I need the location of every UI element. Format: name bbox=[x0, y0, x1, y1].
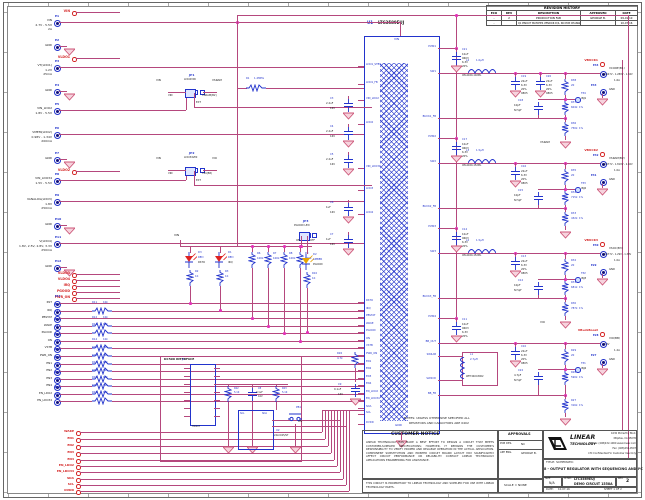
testpoint-ref: TP2 bbox=[581, 273, 586, 276]
resistor bbox=[280, 252, 288, 268]
resistor-ref: R8 bbox=[289, 253, 292, 256]
capacitor-voltage: 16V bbox=[330, 164, 335, 167]
wire bbox=[358, 355, 364, 356]
approval-name: GEORGE B. bbox=[521, 452, 537, 455]
capacitor-voltage: 16V bbox=[330, 108, 335, 111]
net-label: DVDD bbox=[34, 489, 74, 492]
terminal-range: 0.677V - 1.29V - 1.39V bbox=[604, 254, 631, 257]
wire bbox=[168, 170, 186, 171]
wire bbox=[358, 317, 364, 318]
inductor-value: 1.0µH bbox=[476, 60, 484, 63]
board-name: DEMO CIRCUIT 1558A bbox=[574, 483, 613, 487]
company-name-line1: LINEAR bbox=[570, 435, 595, 442]
wire bbox=[59, 348, 92, 349]
resistor-value: 10k bbox=[103, 317, 108, 320]
inductor-ref: L2 bbox=[466, 240, 469, 243]
rail-name: VSRAM bbox=[540, 141, 550, 144]
capacitor-note: NI 5pF bbox=[514, 380, 522, 383]
signal-name: EN_LDO34 bbox=[18, 399, 52, 402]
ic-pin-label: PBSTAT bbox=[366, 315, 375, 318]
resistor bbox=[264, 252, 272, 268]
capacitor-voltage: 16V bbox=[258, 396, 263, 399]
resistor-ref: R34 bbox=[571, 192, 576, 195]
ic-pin-label: PVIN4 bbox=[408, 316, 436, 319]
wire bbox=[438, 228, 456, 229]
capacitor-tol: 20% bbox=[462, 66, 468, 69]
wire bbox=[358, 424, 364, 425]
address-line: LTC Confidential-For Customer Use Only bbox=[584, 453, 636, 456]
ic-no-value: LTC3589EUJ bbox=[574, 478, 595, 482]
signal-name: EN4 bbox=[18, 384, 52, 387]
ic-pin-label: LDO1_STBY bbox=[366, 64, 381, 67]
pin-stub bbox=[184, 368, 190, 369]
resistor-value: 1K bbox=[225, 276, 228, 279]
capacitor bbox=[452, 142, 461, 155]
capacitor-voltage: 16V bbox=[330, 244, 335, 247]
dc590-title: DC590 INTERFACE bbox=[164, 358, 194, 361]
wire bbox=[322, 410, 323, 432]
ic-pin-label: BUCK1_FB bbox=[408, 116, 436, 119]
capacitor-ref: C4 bbox=[330, 126, 333, 129]
wire bbox=[358, 414, 364, 415]
wire bbox=[538, 369, 565, 370]
wire bbox=[228, 402, 229, 446]
capacitor-ref: C15 bbox=[518, 190, 523, 193]
capacitor-voltage: 16V bbox=[338, 394, 343, 397]
resistor-ref: R17 bbox=[92, 362, 97, 365]
resistor-tol: 1% bbox=[579, 405, 583, 408]
gnd-label: GND bbox=[20, 89, 52, 92]
sheet-info: SHEET 1 OF 2 bbox=[604, 489, 622, 492]
gnd-label: GND bbox=[609, 269, 615, 272]
resistor-value: 10k bbox=[103, 302, 108, 305]
jumper-pad bbox=[312, 233, 317, 238]
capacitor-value: 4.7pF bbox=[514, 375, 521, 378]
capacitor-voltage: 16V bbox=[330, 136, 335, 139]
wire bbox=[331, 410, 332, 453]
testpoint-label: INJ3 bbox=[581, 278, 586, 281]
terminal-id: E1 bbox=[55, 15, 59, 18]
terminal-desc: V(LDO4) bbox=[6, 240, 52, 243]
terminal-current: 1.0A bbox=[614, 170, 620, 173]
gnd-symbol bbox=[343, 216, 354, 224]
ic-pin-label: PVIN1 bbox=[408, 46, 436, 49]
pin-stub bbox=[214, 408, 220, 409]
testpoint-label: INJ1 bbox=[581, 98, 586, 101]
terminal-name: VSOC(B3) bbox=[609, 247, 623, 250]
resistor-ref: R31 bbox=[571, 282, 576, 285]
wire bbox=[276, 402, 277, 410]
signal-name: EN3 bbox=[18, 377, 52, 380]
resistor bbox=[303, 272, 311, 288]
fb-wire bbox=[438, 208, 565, 209]
resistor-value: 590k bbox=[571, 377, 577, 380]
inductor-part: XPL4020-102ML bbox=[462, 75, 481, 78]
resistor-value: 604k bbox=[571, 107, 577, 110]
signal-name: EN_LDO2 bbox=[18, 392, 52, 395]
scale-box: SCALE = NONE bbox=[498, 479, 543, 493]
wire bbox=[358, 393, 364, 394]
wire bbox=[628, 15, 629, 460]
terminal-desc: VIN bbox=[6, 19, 52, 22]
wire bbox=[190, 286, 191, 302]
resistor-ref: R36 bbox=[571, 123, 576, 126]
title-label: TITLE: SCHEMATIC bbox=[546, 461, 573, 464]
capacitor bbox=[452, 52, 461, 65]
resistor-ref: R13 bbox=[92, 324, 97, 327]
resistor-value: 20 bbox=[571, 175, 574, 178]
wire bbox=[112, 326, 364, 327]
wire bbox=[168, 92, 186, 93]
resistor-value: 20 bbox=[571, 85, 574, 88]
capacitor-value: 2.2uF bbox=[326, 103, 333, 106]
gnd-symbol bbox=[560, 418, 571, 426]
resistor bbox=[216, 270, 224, 286]
wire bbox=[400, 22, 401, 36]
capacitor-value: 2.2uF bbox=[326, 131, 333, 134]
wire bbox=[565, 226, 566, 230]
signal-name: WAKE bbox=[18, 324, 52, 327]
ic-pin-label: EN_LDO2 bbox=[366, 391, 378, 394]
rev-value: 2 bbox=[626, 480, 629, 485]
capacitor-size: 0805 bbox=[546, 93, 553, 96]
ic-pin-label: EN3 bbox=[366, 376, 371, 379]
ic-pin-label: VIN_LDO2 bbox=[366, 98, 379, 101]
wire bbox=[59, 356, 92, 357]
terminal-id: E4 bbox=[55, 84, 59, 87]
j1-connector bbox=[190, 364, 216, 426]
junction-dot bbox=[300, 245, 303, 248]
capacitor-value: 10pF bbox=[514, 105, 520, 108]
wire bbox=[59, 110, 186, 111]
terminal-id: E6 bbox=[55, 127, 59, 130]
resistor-value: 1K bbox=[312, 278, 315, 281]
jumper-sub-left: VIN bbox=[168, 95, 172, 98]
terminal-desc: VANALOG(LDO3) bbox=[6, 198, 52, 201]
schematic-canvas: VINE1VIN2.7V - 5.5V2AE2GNDVLDO1E3VT(LDO1… bbox=[0, 0, 645, 500]
approval-name: NC bbox=[521, 443, 525, 446]
ic-pin-label: SW1 bbox=[408, 71, 436, 74]
resistor-value: 10k bbox=[103, 370, 108, 373]
inductor-part: XPL4020-152ML bbox=[462, 255, 481, 258]
terminal-id: E22 bbox=[55, 364, 60, 367]
wire bbox=[59, 333, 92, 334]
net-label: IRQ bbox=[30, 284, 70, 288]
customer-notice-box: CUSTOMER NOTICE LINEAR TECHNOLOGY HAS MA… bbox=[362, 430, 498, 479]
testpoint-ref: TP3 bbox=[581, 183, 586, 186]
junction-dot bbox=[306, 331, 309, 334]
ic-pin-label: PGOOD bbox=[366, 330, 376, 333]
ic-pin-label: SW4CD bbox=[408, 378, 436, 381]
terminal-desc: VMEM(LDO2) bbox=[6, 131, 52, 134]
led-ref: D1 bbox=[228, 252, 232, 255]
resistor-value: 10k bbox=[103, 377, 108, 380]
terminal-id: E15 bbox=[55, 311, 60, 314]
capacitor bbox=[534, 372, 543, 385]
resistor-value: 5.1K bbox=[282, 392, 287, 395]
wire bbox=[59, 267, 67, 268]
resistor-value: 10k bbox=[103, 362, 108, 365]
junction-dot bbox=[283, 332, 286, 335]
wire bbox=[59, 67, 364, 68]
capacitor-ref: C9 bbox=[338, 384, 341, 387]
terminal-id: E28 bbox=[593, 335, 598, 338]
terminal-name: VSRAM(B2) bbox=[609, 157, 625, 160]
wire bbox=[538, 295, 539, 298]
resistor bbox=[561, 122, 569, 136]
capacitor-ref: C14 bbox=[462, 229, 467, 232]
terminal-id: E34 bbox=[593, 65, 598, 68]
net-label: VLDO1 bbox=[30, 56, 70, 60]
pin-stub bbox=[214, 400, 220, 401]
resistor-value: 10k bbox=[103, 339, 108, 342]
ic-pin-label: RSTO bbox=[366, 300, 373, 303]
resistor bbox=[248, 252, 256, 268]
wire bbox=[334, 410, 335, 460]
ic-pin-label: BUCK2_FB bbox=[408, 206, 436, 209]
resistor-value: 100k bbox=[257, 258, 263, 261]
wire bbox=[340, 410, 341, 472]
terminal-desc: VIN_LDO2 bbox=[6, 107, 52, 110]
capacitor-ref: C19 bbox=[521, 76, 526, 79]
wire bbox=[358, 370, 364, 371]
ic-part: 24LC025/ST bbox=[274, 435, 288, 438]
net-label: VBUCK1 bbox=[530, 59, 598, 62]
ic-pin-label: ON bbox=[366, 338, 370, 341]
capacitor-value: 0.1uF bbox=[334, 389, 341, 392]
resistor-value: 750k bbox=[571, 128, 577, 131]
resistor-ref: R30 bbox=[571, 303, 576, 306]
wire bbox=[59, 201, 364, 202]
resistor-ref: R1 bbox=[246, 78, 249, 81]
wire bbox=[59, 311, 92, 312]
pin-stub bbox=[184, 376, 190, 377]
gnd-symbol bbox=[597, 98, 608, 106]
ic-pin-label: EN_LDO34 bbox=[366, 398, 380, 401]
resistor-ref: R7 bbox=[273, 253, 276, 256]
size-value: N/A bbox=[549, 482, 555, 486]
resistor-tol: 1% bbox=[579, 308, 583, 311]
terminal-id: E11 bbox=[55, 236, 61, 239]
resistor-tol: 1% bbox=[579, 128, 583, 131]
gnd-symbol bbox=[597, 368, 608, 376]
wire bbox=[358, 100, 364, 101]
resistor bbox=[92, 329, 112, 337]
buckboost-loop bbox=[462, 352, 498, 386]
testpoint-label: INJ4 bbox=[581, 368, 586, 371]
terminal-name: VIO(BB) bbox=[609, 337, 620, 340]
net-label: VBuckBoost bbox=[530, 329, 598, 332]
terminal-id: E17 bbox=[55, 326, 60, 329]
wire bbox=[358, 363, 364, 364]
capacitor-size: 0805 bbox=[521, 273, 528, 276]
resistor bbox=[561, 302, 569, 316]
gnd-symbol bbox=[290, 446, 301, 454]
jumper-opt-right: VIO bbox=[212, 157, 217, 160]
gnd-symbol bbox=[64, 227, 75, 235]
wire bbox=[59, 326, 92, 327]
ic-pin-label: LDO2 bbox=[366, 122, 373, 125]
ic-pin-label: PWR_ON bbox=[366, 353, 377, 356]
resistor-value: 100k bbox=[289, 258, 295, 261]
gnd-symbol bbox=[560, 231, 571, 239]
resistor bbox=[224, 386, 232, 402]
wire bbox=[358, 84, 364, 85]
ic-pin-label: SDA bbox=[366, 406, 371, 409]
capacitor-value: 10pF bbox=[514, 195, 520, 198]
fb-wire bbox=[438, 298, 565, 299]
terminal-id: E12 bbox=[55, 260, 61, 263]
terminal-range: 0.647V - 1.289V - 1.34V bbox=[604, 74, 633, 77]
size-box: SIZE N/A bbox=[543, 477, 562, 487]
date-box: DATE: 10-07-16 SHEET 1 OF 2 bbox=[543, 487, 637, 493]
capacitor-note: NI 5pF bbox=[514, 200, 522, 203]
testpoint-label: INJ2 bbox=[581, 188, 586, 191]
wire bbox=[80, 485, 346, 486]
wire bbox=[358, 385, 364, 386]
gnd-symbol bbox=[510, 180, 521, 188]
terminal-current: 1.2A bbox=[614, 350, 620, 353]
pin-stub bbox=[184, 392, 190, 393]
wire bbox=[112, 333, 364, 334]
jumper-sub-bottom: EXT bbox=[196, 180, 201, 183]
wire bbox=[300, 268, 301, 341]
terminal-id: E7 bbox=[55, 152, 59, 155]
capacitor bbox=[511, 347, 520, 360]
resistor-value: 10k bbox=[103, 347, 108, 350]
gnd-symbol bbox=[343, 248, 354, 256]
wire bbox=[358, 302, 364, 303]
net-label-marker bbox=[600, 62, 605, 67]
wire bbox=[76, 171, 120, 172]
wire bbox=[203, 92, 217, 93]
terminal-desc: 2.7V - 5.5V bbox=[6, 24, 52, 27]
net-label: SCL bbox=[34, 483, 74, 486]
capacitor-ref: C17 bbox=[462, 139, 467, 142]
resistor bbox=[561, 79, 569, 95]
terminal-id: E19 bbox=[55, 341, 60, 344]
terminal-id: E16 bbox=[55, 319, 60, 322]
wire bbox=[358, 310, 364, 311]
resistor-ref: R15 bbox=[92, 347, 97, 350]
ic-pin-label: EN4 bbox=[366, 383, 371, 386]
resistor-value: 10k bbox=[103, 355, 108, 358]
terminal-id: E23 bbox=[55, 372, 60, 375]
resistor-ref: R35 bbox=[571, 170, 576, 173]
wire bbox=[438, 318, 456, 319]
terminal-desc: 250mA bbox=[6, 207, 52, 210]
terminal-name: VCORE(B1) bbox=[609, 67, 625, 70]
resistor-ref: R10 bbox=[312, 273, 317, 276]
resistor-value: 20 bbox=[571, 355, 574, 358]
resistor bbox=[272, 386, 280, 402]
resistor-value: 5.1K bbox=[234, 392, 239, 395]
resistor bbox=[561, 101, 569, 115]
fb-wire bbox=[438, 395, 565, 396]
pin-stub bbox=[214, 368, 220, 369]
terminal-id: E2 bbox=[55, 39, 59, 42]
capacitor bbox=[534, 282, 543, 295]
gnd-symbol bbox=[510, 270, 521, 278]
net-label: PGOOD bbox=[30, 290, 70, 294]
wire bbox=[237, 15, 238, 246]
ic-pin-label: VIN_LDO34 bbox=[366, 166, 381, 169]
resistor-ref: R27 bbox=[571, 400, 576, 403]
net-label-marker bbox=[600, 332, 605, 337]
wire bbox=[59, 225, 67, 226]
net-label: VBUCK3 bbox=[530, 239, 598, 242]
gnd-symbol bbox=[597, 188, 608, 196]
signal-name: VSTB bbox=[18, 346, 52, 349]
capacitor bbox=[344, 127, 353, 140]
ic-pin-label: SCL bbox=[366, 412, 371, 415]
net-label: EN_LDO34 bbox=[34, 470, 74, 473]
wire bbox=[59, 159, 67, 160]
ic-no-label: IC NO. bbox=[564, 478, 571, 481]
wire bbox=[358, 332, 364, 333]
capacitor-ref: C21 bbox=[462, 49, 467, 52]
junction-dot bbox=[251, 317, 254, 320]
wire bbox=[622, 60, 623, 430]
terminal-id: E21 bbox=[55, 357, 60, 360]
resistor-ref: R26 bbox=[337, 353, 342, 356]
gnd-label: GND bbox=[609, 359, 615, 362]
led-net: PGOOD bbox=[313, 264, 323, 267]
capacitor-value: 10pF bbox=[514, 285, 520, 288]
wire bbox=[59, 243, 364, 244]
wire bbox=[76, 286, 120, 287]
wire bbox=[358, 400, 364, 401]
wire bbox=[565, 316, 566, 320]
jumper-opt-left: ON bbox=[296, 240, 300, 243]
pin-stub bbox=[184, 416, 190, 417]
wire bbox=[237, 15, 628, 16]
pin-stub bbox=[184, 400, 190, 401]
terminal-id: E29 bbox=[591, 265, 596, 268]
wire bbox=[80, 472, 340, 473]
inductor-ref: L1 bbox=[470, 354, 473, 357]
resistor-ref: R14 bbox=[92, 339, 97, 342]
wire bbox=[565, 136, 566, 140]
wire bbox=[80, 479, 343, 480]
resistor-value: 1.2MEG bbox=[254, 78, 264, 81]
resistor-value: 10k bbox=[103, 385, 108, 388]
ic-pin-label: VSTB bbox=[366, 345, 373, 348]
wire bbox=[358, 124, 364, 125]
terminal-id: E10 bbox=[55, 218, 61, 221]
resistor-value: 715k bbox=[571, 197, 577, 200]
inductor-part: XPL4020-152ML bbox=[462, 165, 481, 168]
wire bbox=[59, 134, 364, 135]
led-color: RED bbox=[228, 257, 233, 260]
signal-name: RST bbox=[18, 301, 52, 304]
ic-pin-label: EN2 bbox=[366, 368, 371, 371]
capacitor bbox=[344, 99, 353, 112]
resistor-ref: R11 bbox=[92, 302, 97, 305]
gnd-label: GND bbox=[609, 89, 615, 92]
ic-pin-label: BB_FB bbox=[408, 393, 436, 396]
vin-rail-label: VIN bbox=[174, 234, 179, 237]
ic-pin-label: SW3 bbox=[408, 251, 436, 254]
inductor-value: 1.5µH bbox=[476, 240, 484, 243]
resistor bbox=[561, 281, 569, 295]
wire bbox=[349, 410, 350, 491]
wire bbox=[358, 378, 364, 379]
capacitor bbox=[511, 167, 520, 180]
signal-name: EN2 bbox=[18, 369, 52, 372]
net-label: EN2 bbox=[34, 444, 74, 447]
jumper-ref: JP2 bbox=[189, 152, 194, 155]
